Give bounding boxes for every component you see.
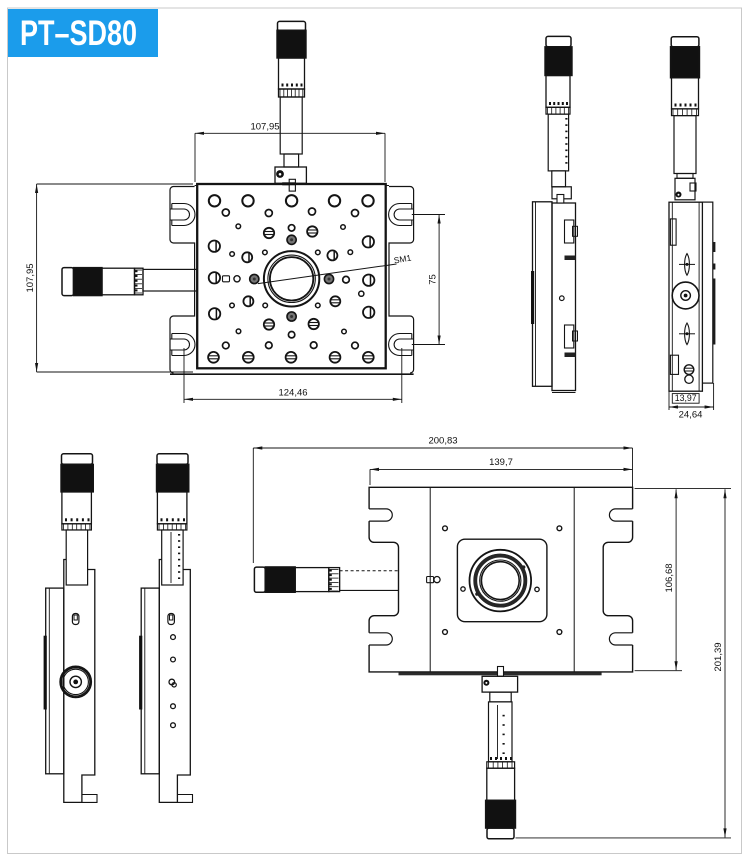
svg-text:24,64: 24,64 [679,410,703,421]
svg-text:107,95: 107,95 [250,122,279,133]
svg-text:200,83: 200,83 [428,436,457,447]
svg-text:124,46: 124,46 [278,388,307,399]
svg-text:PT–SD80: PT–SD80 [20,14,137,53]
svg-text:139,7: 139,7 [489,457,513,468]
svg-text:75: 75 [428,274,439,285]
svg-text:106,68: 106,68 [664,563,675,592]
svg-text:107,95: 107,95 [25,263,36,292]
svg-text:13,97: 13,97 [675,393,697,403]
svg-text:201,39: 201,39 [713,642,724,671]
